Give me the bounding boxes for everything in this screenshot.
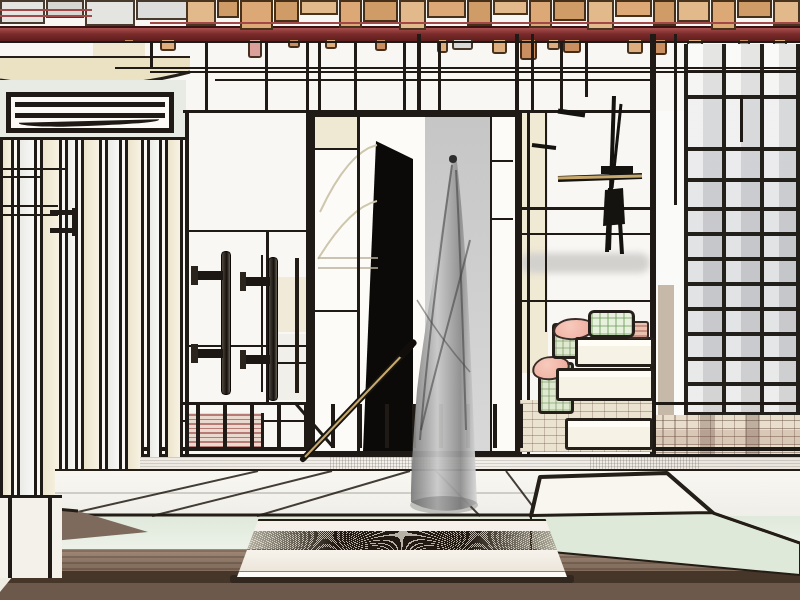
drape-knot (449, 155, 457, 163)
railing-brace (296, 404, 333, 447)
pole-tip (402, 343, 413, 354)
drape-and-pole (0, 0, 800, 600)
grey-drape (411, 160, 477, 511)
illustration-stage (0, 0, 800, 600)
